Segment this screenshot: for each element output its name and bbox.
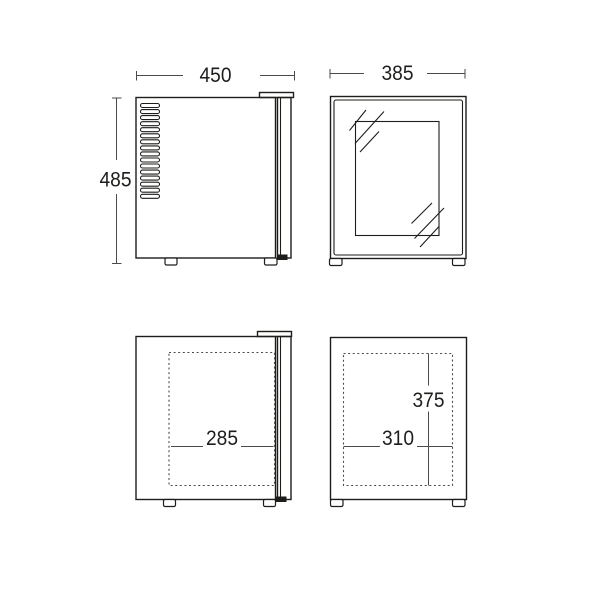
dim-label-height: 485 — [100, 169, 132, 192]
foot-right — [453, 500, 466, 507]
page: 450 485 — [0, 0, 600, 600]
louver — [141, 116, 160, 120]
bottom-hinge-icon — [276, 497, 287, 503]
dim-label-width: 310 — [382, 427, 414, 450]
dimension-interior-depth: 285 — [171, 427, 274, 450]
view-front-top: 385 — [330, 62, 467, 266]
louver — [141, 182, 160, 186]
dimension-width-top: 450 — [137, 64, 295, 87]
louver — [141, 194, 160, 198]
glass-stroke — [412, 203, 433, 224]
foot-right — [264, 500, 276, 507]
louver — [141, 170, 160, 174]
cabinet-front — [331, 338, 467, 500]
foot-right — [453, 259, 466, 266]
glass-stroke — [355, 112, 384, 144]
door-front — [331, 97, 467, 259]
louver — [141, 110, 160, 114]
foot-right — [265, 258, 278, 265]
dimension-height-left: 485 — [100, 98, 132, 264]
dim-label-width: 385 — [382, 62, 414, 85]
hinge-cap-icon — [260, 93, 294, 98]
dimension-interior-height: 375 — [413, 354, 445, 486]
louver — [141, 140, 160, 144]
louver — [141, 104, 160, 108]
foot-left — [165, 258, 177, 265]
glass-reflection-icon — [350, 110, 445, 247]
bottom-hinge-icon — [277, 255, 288, 261]
louver — [141, 188, 160, 192]
interior-outline-dashed — [169, 353, 275, 486]
cabinet-body — [136, 337, 276, 500]
louver — [141, 152, 160, 156]
door-front-inner — [334, 100, 463, 255]
louver — [141, 134, 160, 138]
dim-label-width: 450 — [200, 64, 232, 87]
vent-louvers — [141, 104, 160, 199]
louver — [141, 122, 160, 126]
glass-stroke — [415, 208, 445, 239]
view-front-bottom: 375 310 — [331, 338, 467, 507]
dim-label-height: 375 — [413, 389, 445, 412]
glass-window — [356, 122, 440, 236]
door-panel-edge — [278, 98, 292, 259]
louver — [141, 158, 160, 162]
foot-left — [331, 500, 344, 507]
louver — [141, 128, 160, 132]
louver — [141, 164, 160, 168]
louver — [141, 146, 160, 150]
view-side-top: 450 485 — [100, 64, 295, 265]
glass-stroke — [350, 110, 367, 131]
technical-drawing: 450 485 — [0, 0, 600, 600]
dimension-interior-width: 310 — [344, 427, 453, 450]
louver — [141, 176, 160, 180]
dim-label-depth: 285 — [206, 427, 238, 450]
dimension-width-top: 385 — [330, 62, 465, 85]
hinge-cap-icon — [258, 332, 292, 337]
foot-left — [164, 500, 176, 507]
interior-outline-dashed — [344, 354, 453, 486]
view-side-bottom: 285 — [136, 332, 292, 507]
door-panel-edge — [278, 337, 292, 500]
foot-left — [330, 259, 343, 266]
